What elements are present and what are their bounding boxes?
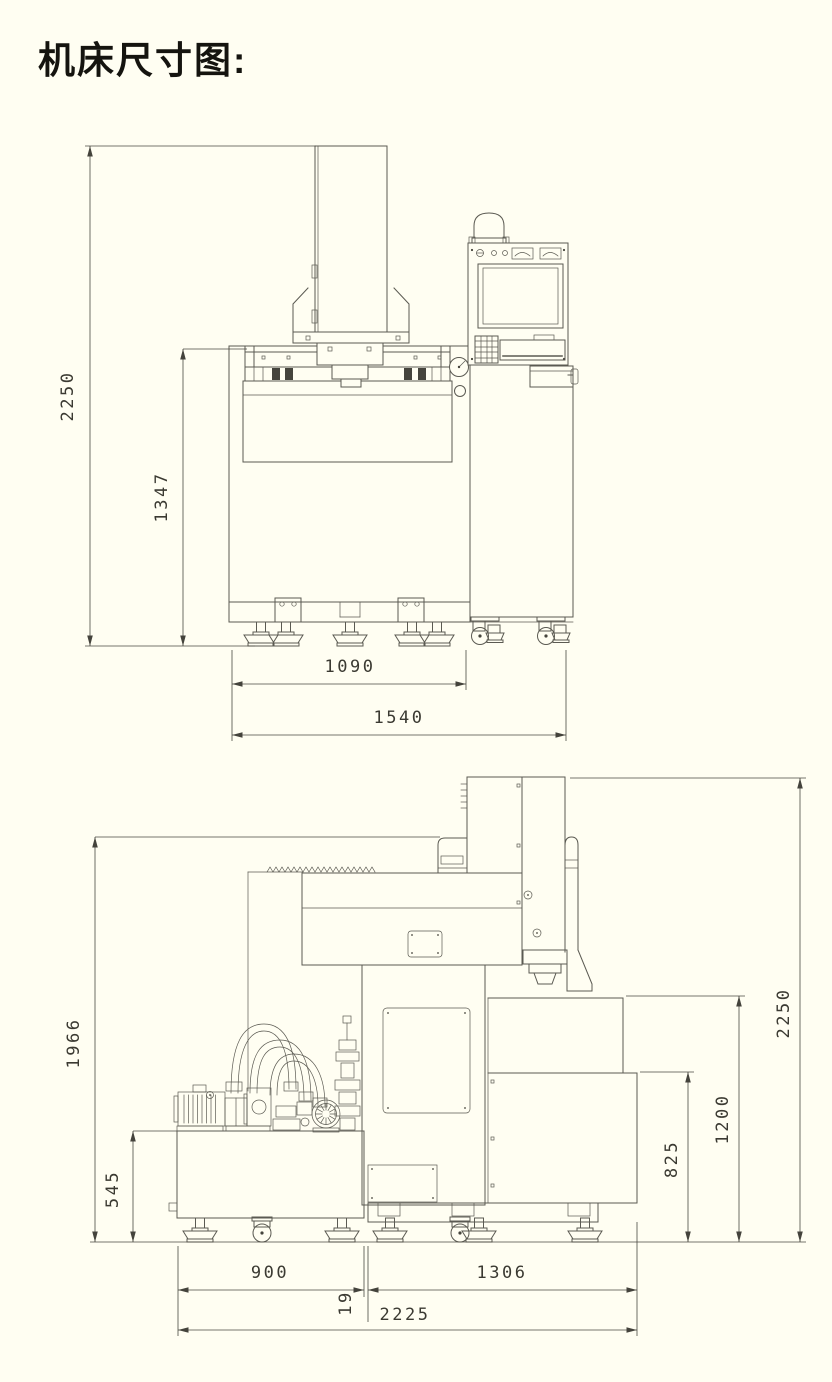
machine-dimension-sheet: 机床尺寸图: <box>0 0 832 1382</box>
hoses <box>226 1024 327 1107</box>
spindle-nose <box>523 950 567 984</box>
side-view: 1966 545 2250 1200 825 900 1306 19 2225 <box>64 777 806 1336</box>
z-axis-cover <box>565 837 592 991</box>
control-cabinet <box>470 347 573 622</box>
tank-feet <box>183 1217 359 1242</box>
dim-label-front-foot-span: 1090 <box>325 657 376 677</box>
dim-label-front-total-width: 1540 <box>374 708 425 728</box>
work-tank-side <box>488 998 623 1203</box>
machine-head <box>317 343 383 387</box>
machine-base <box>229 598 470 622</box>
pump-motor <box>174 1085 312 1131</box>
side-drawer <box>530 366 578 387</box>
dim-label-side-tank-height: 545 <box>103 1170 123 1208</box>
dim-label-side-gap: 19 <box>336 1290 356 1315</box>
casters <box>471 617 570 645</box>
fluid-tank <box>169 1131 364 1218</box>
dim-label-side-base-depth: 1306 <box>477 1263 528 1283</box>
dim-label-front-total-height: 2250 <box>58 371 78 422</box>
dim-label-side-tank-width: 900 <box>251 1263 289 1283</box>
ram-beam <box>248 867 522 1091</box>
dim-label-side-worktank-top-height: 1200 <box>713 1094 733 1145</box>
dim-label-side-bed-height: 825 <box>662 1140 682 1178</box>
machine-dimension-drawing: 2250 1347 1090 1540 <box>0 0 832 1382</box>
valve-stack <box>335 1016 360 1130</box>
machine-bed <box>485 1073 637 1203</box>
dim-label-side-head-height: 1966 <box>64 1018 84 1069</box>
side-view-dimensions: 1966 545 2250 1200 825 900 1306 19 2225 <box>64 778 806 1336</box>
dim-label-front-upper-height: 1347 <box>152 472 172 523</box>
front-cabinet <box>362 965 485 1205</box>
beacon-light-icon <box>469 213 509 243</box>
leveling-feet <box>244 622 454 646</box>
column-side <box>461 777 565 963</box>
dim-label-side-total-depth: 2225 <box>380 1305 431 1325</box>
dim-label-side-total-height: 2250 <box>774 988 794 1039</box>
work-tank <box>243 381 452 462</box>
front-view: 2250 1347 1090 1540 <box>58 146 578 741</box>
head-top-housing <box>438 838 467 873</box>
machine-feet-side <box>373 1217 602 1242</box>
column <box>293 146 409 343</box>
